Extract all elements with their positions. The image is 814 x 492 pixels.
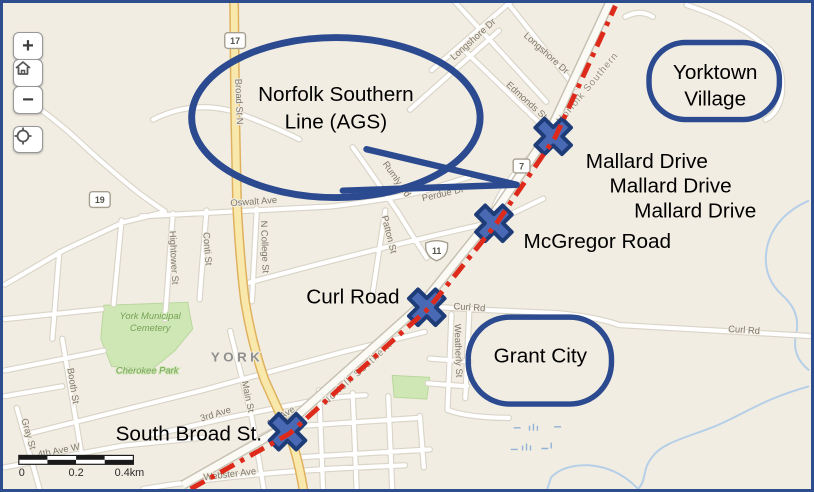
grant-city-label: Grant City — [494, 345, 588, 368]
yorktown-label-line2: Village — [684, 88, 746, 111]
street-label-weatherly: Weatherly St — [452, 324, 464, 378]
crossing-label-mallard-1: Mallard Drive — [586, 150, 708, 173]
street-label-broad-st-n: Broad St N — [233, 79, 245, 125]
svg-text:19: 19 — [95, 195, 105, 205]
map-window: Longshore Dr Longshore Dr Edmonds St Bro… — [0, 0, 814, 492]
cemetery-label-line1: York Municipal — [120, 311, 182, 321]
city-label: YORK — [211, 350, 263, 365]
locate-button[interactable] — [13, 126, 43, 153]
crossing-label-south-broad: South Broad St. — [116, 423, 262, 446]
svg-text:7: 7 — [519, 161, 524, 171]
home-button[interactable] — [13, 59, 43, 87]
map-canvas[interactable]: Longshore Dr Longshore Dr Edmonds St Bro… — [3, 3, 811, 489]
cemetery-label-line2: Cemetery — [130, 323, 172, 333]
crossing-label-mallard-2: Mallard Drive — [610, 175, 732, 198]
svg-text:17: 17 — [230, 36, 240, 46]
minus-icon: − — [22, 89, 34, 112]
scale-tick-0: 0 — [19, 467, 25, 479]
street-label-n-college: N College St — [259, 220, 271, 273]
crossing-label-mallard-3: Mallard Drive — [634, 199, 756, 222]
svg-text:11: 11 — [432, 246, 441, 256]
route-shield-7: 7 — [513, 159, 530, 173]
route-shield-19: 19 — [89, 192, 110, 208]
yorktown-label-line1: Yorktown — [673, 61, 758, 84]
zoom-in-button[interactable]: + — [13, 32, 43, 60]
plus-icon: + — [22, 35, 34, 58]
crossing-label-curl: Curl Road — [306, 285, 399, 308]
crossing-label-mcgregor: McGregor Road — [524, 230, 672, 253]
park-label: Cherokee Park — [116, 365, 180, 375]
zoom-out-button[interactable]: − — [13, 86, 43, 114]
scale-tick-end: 0.4km — [115, 467, 145, 479]
bubble-label-line2: Line (AGS) — [285, 110, 388, 133]
bubble-label-line1: Norfolk Southern — [258, 83, 414, 106]
scale-tick-mid: 0.2 — [69, 467, 84, 479]
route-shield-17: 17 — [225, 33, 246, 49]
